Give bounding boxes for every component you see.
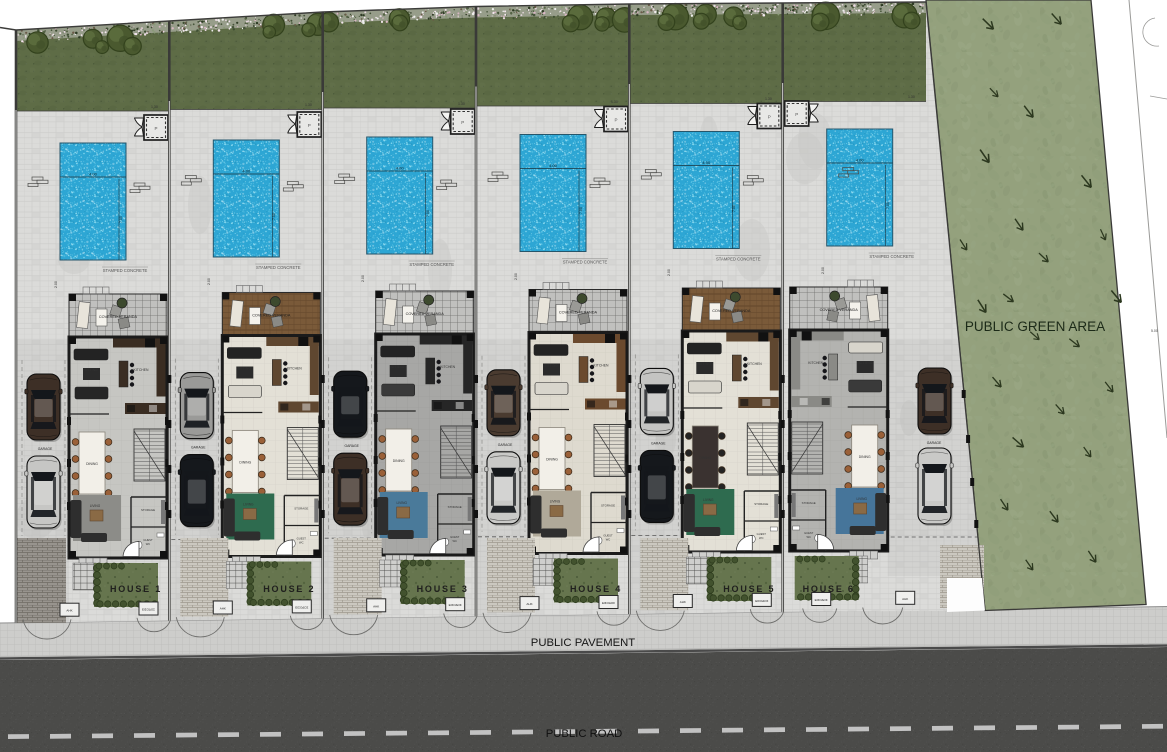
svg-text:WC: WC <box>299 541 304 545</box>
svg-text:SITTING: SITTING <box>84 368 98 372</box>
svg-text:WC: WC <box>806 535 811 539</box>
svg-text:ΕΙΣΟΔΟΣ: ΕΙΣΟΔΟΣ <box>755 599 768 603</box>
svg-text:ΕΙΣΟΔΟΣ: ΕΙΣΟΔΟΣ <box>449 603 462 607</box>
svg-text:LIVING: LIVING <box>396 501 407 505</box>
svg-text:1.30: 1.30 <box>908 95 915 99</box>
svg-text:1.30: 1.30 <box>458 102 465 106</box>
svg-text:AHK: AHK <box>220 607 226 611</box>
svg-text:4.00: 4.00 <box>702 160 711 165</box>
svg-text:DINING: DINING <box>393 459 405 463</box>
svg-text:7.00: 7.00 <box>272 213 276 220</box>
svg-text:P: P <box>308 123 311 128</box>
svg-text:DINING: DINING <box>546 458 558 462</box>
svg-text:GARAGE: GARAGE <box>927 441 942 445</box>
svg-text:2.00: 2.00 <box>54 281 58 288</box>
svg-text:GARAGE: GARAGE <box>651 441 666 445</box>
svg-text:1.30: 1.30 <box>305 103 312 107</box>
svg-text:WC: WC <box>146 542 151 546</box>
svg-text:PUBLIC GREEN AREA: PUBLIC GREEN AREA <box>965 319 1105 334</box>
svg-text:GUEST: GUEST <box>143 538 153 542</box>
svg-text:ΕΙΣΟΔΟΣ: ΕΙΣΟΔΟΣ <box>295 605 308 609</box>
svg-text:GUEST: GUEST <box>297 537 307 541</box>
svg-text:COVERED VERANDA: COVERED VERANDA <box>252 314 291 318</box>
svg-text:SITTING: SITTING <box>544 364 558 368</box>
svg-text:DINING: DINING <box>239 461 251 465</box>
svg-text:PUBLIC PAVEMENT: PUBLIC PAVEMENT <box>531 637 636 649</box>
svg-text:1.30: 1.30 <box>611 100 618 104</box>
svg-text:LIVING: LIVING <box>90 504 101 508</box>
svg-text:ΕΙΣΟΔΟΣ: ΕΙΣΟΔΟΣ <box>142 608 155 612</box>
svg-text:KITCHEN: KITCHEN <box>134 368 149 372</box>
svg-text:2.00: 2.00 <box>667 269 671 276</box>
svg-text:SITTING: SITTING <box>859 361 873 365</box>
svg-text:STAMPED CONCRETE: STAMPED CONCRETE <box>103 268 148 273</box>
svg-text:P: P <box>154 126 157 131</box>
svg-text:SITTING: SITTING <box>238 367 252 371</box>
svg-text:GARAGE: GARAGE <box>38 447 53 451</box>
svg-text:SITTING: SITTING <box>391 365 405 369</box>
svg-text:P: P <box>614 118 617 123</box>
svg-text:DINING: DINING <box>859 455 871 459</box>
svg-text:7.00: 7.00 <box>579 207 583 214</box>
svg-text:ΕΙΣΟΔΟΣ: ΕΙΣΟΔΟΣ <box>602 601 615 605</box>
svg-text:P: P <box>461 120 464 125</box>
svg-text:STAMPED CONCRETE: STAMPED CONCRETE <box>563 260 608 265</box>
svg-text:COVERED VERANDA: COVERED VERANDA <box>406 312 445 316</box>
svg-text:WC: WC <box>759 536 764 540</box>
svg-text:STORAGE: STORAGE <box>294 507 308 511</box>
svg-text:SITTING: SITTING <box>698 362 712 366</box>
svg-text:LIVING: LIVING <box>550 500 561 504</box>
svg-text:AHK: AHK <box>66 609 72 613</box>
svg-text:AHK: AHK <box>902 597 908 601</box>
svg-text:COVERED VERANDA: COVERED VERANDA <box>99 315 138 319</box>
svg-text:AHK: AHK <box>680 600 686 604</box>
svg-text:HOUSE 1: HOUSE 1 <box>110 584 162 594</box>
svg-text:HOUSE 2: HOUSE 2 <box>263 584 315 594</box>
svg-text:4.00: 4.00 <box>856 158 865 163</box>
svg-text:GARAGE: GARAGE <box>344 444 359 448</box>
svg-text:P: P <box>768 115 771 120</box>
svg-text:2.00: 2.00 <box>361 275 365 282</box>
svg-text:GUEST: GUEST <box>804 531 814 535</box>
svg-text:KITCHEN: KITCHEN <box>287 367 302 371</box>
svg-text:4.00: 4.00 <box>396 166 405 171</box>
svg-text:7.00: 7.00 <box>732 205 736 212</box>
svg-text:1.30: 1.30 <box>151 105 158 109</box>
svg-text:WC: WC <box>606 538 611 542</box>
svg-text:GUEST: GUEST <box>603 534 613 538</box>
svg-text:STORAGE: STORAGE <box>802 501 816 505</box>
svg-text:DINING: DINING <box>699 456 711 460</box>
svg-text:2.00: 2.00 <box>821 267 825 274</box>
svg-text:GUEST: GUEST <box>757 532 767 536</box>
svg-text:STAMPED CONCRETE: STAMPED CONCRETE <box>409 262 454 267</box>
svg-text:COVERED VERANDA: COVERED VERANDA <box>712 309 751 313</box>
svg-text:HOUSE 5: HOUSE 5 <box>723 584 775 594</box>
svg-text:2.00: 2.00 <box>514 273 518 280</box>
svg-text:GARAGE: GARAGE <box>498 443 513 447</box>
svg-text:STORAGE: STORAGE <box>141 508 155 512</box>
svg-text:7.00: 7.00 <box>119 216 123 223</box>
svg-text:GARAGE: GARAGE <box>191 446 206 450</box>
svg-text:COVERED VERANDA: COVERED VERANDA <box>820 308 859 312</box>
svg-text:1.30: 1.30 <box>765 97 772 101</box>
svg-text:2.00: 2.00 <box>207 278 211 285</box>
svg-text:HOUSE 3: HOUSE 3 <box>417 584 469 594</box>
svg-text:PUBLIC ROAD: PUBLIC ROAD <box>546 728 623 740</box>
svg-text:4.00: 4.00 <box>549 163 558 168</box>
svg-text:WC: WC <box>452 539 457 543</box>
svg-text:7.00: 7.00 <box>886 202 890 209</box>
svg-text:STAMPED CONCRETE: STAMPED CONCRETE <box>869 254 914 259</box>
svg-text:AHK: AHK <box>373 604 379 608</box>
svg-text:STORAGE: STORAGE <box>754 502 768 506</box>
svg-text:4.00: 4.00 <box>242 169 251 174</box>
svg-text:DINING: DINING <box>86 462 98 466</box>
svg-text:KITCHEN: KITCHEN <box>594 364 609 368</box>
svg-text:P: P <box>795 112 798 117</box>
svg-text:LIVING: LIVING <box>856 497 867 501</box>
svg-text:5.00: 5.00 <box>1151 329 1158 333</box>
svg-text:7.00: 7.00 <box>426 210 430 217</box>
svg-text:STORAGE: STORAGE <box>601 504 615 508</box>
svg-text:ΕΙΣΟΔΟΣ: ΕΙΣΟΔΟΣ <box>815 598 828 602</box>
svg-text:HOUSE 4: HOUSE 4 <box>570 584 622 594</box>
svg-text:KITCHEN: KITCHEN <box>440 365 455 369</box>
svg-text:LIVING: LIVING <box>703 498 714 502</box>
svg-text:STORAGE: STORAGE <box>448 505 462 509</box>
svg-text:LIVING: LIVING <box>243 503 254 507</box>
svg-text:STAMPED CONCRETE: STAMPED CONCRETE <box>716 257 761 262</box>
svg-text:AHK: AHK <box>526 602 532 606</box>
svg-text:STAMPED CONCRETE: STAMPED CONCRETE <box>256 265 301 270</box>
svg-text:COVERED VERANDA: COVERED VERANDA <box>559 311 598 315</box>
svg-text:4.00: 4.00 <box>89 172 98 177</box>
svg-text:KITCHEN: KITCHEN <box>808 361 823 365</box>
svg-text:KITCHEN: KITCHEN <box>747 362 762 366</box>
svg-text:GUEST: GUEST <box>450 535 460 539</box>
